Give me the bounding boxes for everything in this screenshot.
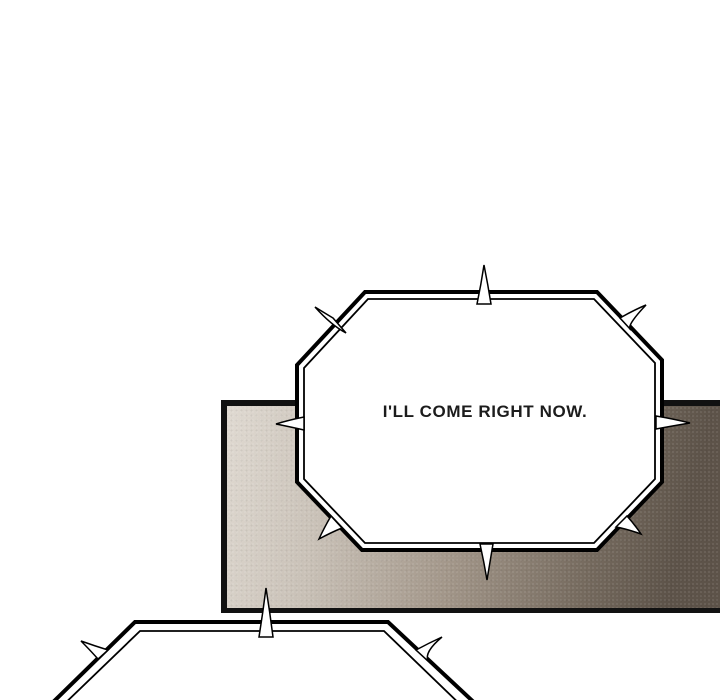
bubble-spike-top [259, 588, 273, 637]
speech-bubble-partial [43, 588, 480, 700]
speech-bubble-text: I'LL COME RIGHT NOW. [335, 402, 635, 422]
bubble-spike-right [656, 416, 690, 429]
speech-bubble-main [276, 265, 690, 580]
bubble-spike-top [477, 265, 491, 304]
speech-bubbles-layer [0, 0, 720, 700]
bubble-spike-bottom [480, 544, 493, 580]
bubble-spike-left [276, 417, 304, 430]
comic-page: I'LL COME RIGHT NOW. [0, 0, 720, 700]
